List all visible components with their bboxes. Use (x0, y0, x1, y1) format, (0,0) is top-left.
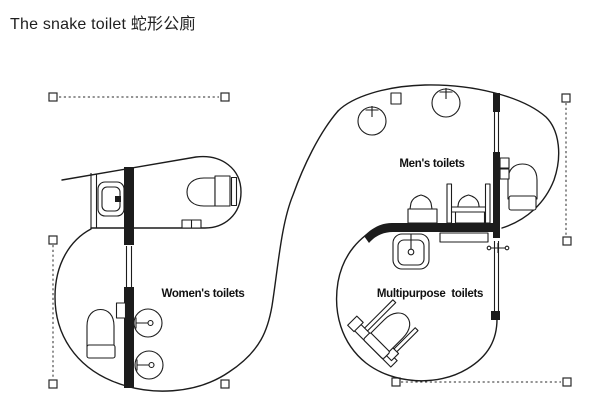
survey-marker (49, 93, 57, 101)
door-pivot-block (491, 311, 500, 320)
counter (440, 233, 488, 242)
survey-marker (563, 378, 571, 386)
urinal-icon (410, 195, 432, 209)
multipurpose-door (487, 241, 509, 320)
survey-marker (221, 93, 229, 101)
toilet-icon (187, 178, 215, 206)
survey-marker (563, 237, 571, 245)
room-label-womens: Women's toilets (161, 288, 244, 300)
toilet-cistern (215, 176, 230, 206)
door-hinge-icon (487, 246, 491, 250)
mens-fixtures (358, 88, 537, 223)
room-label-mens: Men's toilets (399, 158, 464, 170)
urinal-icon (408, 209, 437, 223)
urinal-privacy-rail (448, 207, 489, 212)
flush-unit (500, 169, 509, 179)
urinal-privacy-post (447, 184, 452, 223)
toilet-icon (87, 310, 114, 348)
door-hinge-icon (505, 246, 509, 250)
multipurpose-fixtures (348, 233, 488, 368)
capsule-fixtures (98, 176, 237, 228)
wall-womens-divider (124, 287, 134, 388)
flush-unit (500, 158, 509, 168)
toilet-panel (232, 178, 237, 206)
survey-marker (49, 380, 57, 388)
wall-mens-door (495, 112, 499, 152)
faucet-icon (408, 249, 414, 255)
urinal-privacy-post (486, 184, 491, 223)
faucet-icon (115, 196, 121, 202)
survey-marker (221, 380, 229, 388)
wall-mens-right-upper (493, 93, 500, 112)
room-label-multipurpose: Multipurpose toilets (377, 288, 483, 300)
paper-dispenser (117, 303, 126, 318)
survey-marker (562, 94, 570, 102)
survey-marker (392, 378, 400, 386)
toilet-cistern (509, 196, 536, 210)
survey-marker (49, 236, 57, 244)
wall-capsule-divider (124, 167, 134, 245)
toilet-cistern (87, 345, 115, 358)
wall-capsule-left (91, 173, 97, 229)
column (391, 93, 401, 104)
wall-womens-stall-door (127, 246, 132, 287)
toilet-icon (508, 164, 537, 199)
floor-plan-canvas: Men's toilets Women's toilets Multipurpo… (0, 0, 600, 415)
faucet-icon (149, 363, 154, 368)
faucet-icon (148, 321, 153, 326)
